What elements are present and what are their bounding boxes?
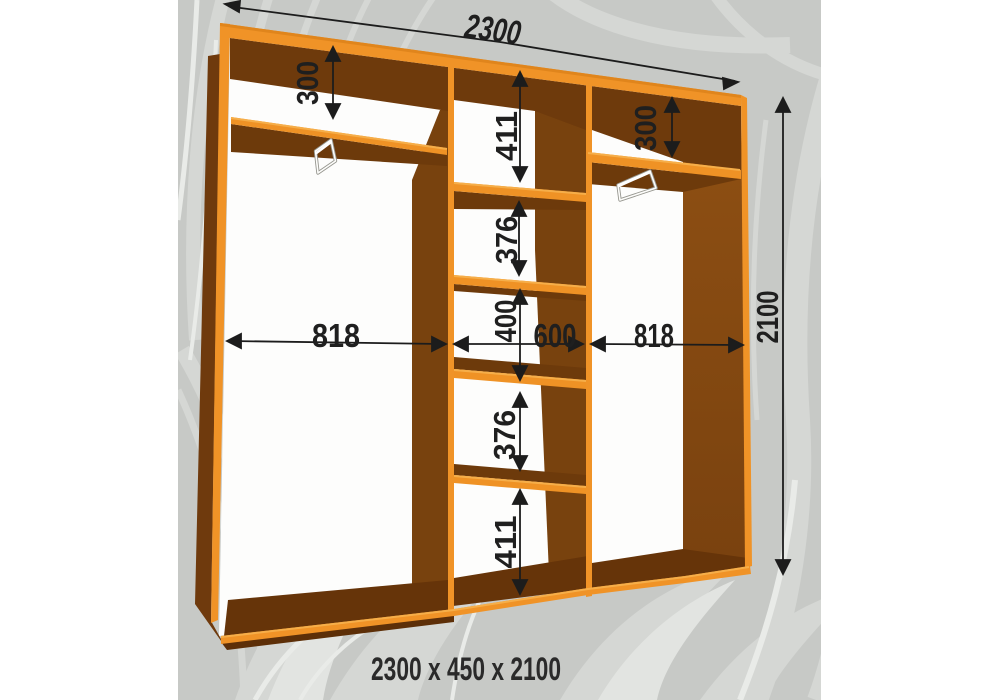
svg-text:300: 300 xyxy=(290,61,325,105)
svg-text:400: 400 xyxy=(488,300,523,343)
svg-text:411: 411 xyxy=(489,111,524,161)
svg-text:376: 376 xyxy=(489,216,524,264)
svg-text:2300 x 450 x 2100: 2300 x 450 x 2100 xyxy=(371,651,561,687)
svg-text:818: 818 xyxy=(312,317,360,354)
svg-text:376: 376 xyxy=(487,410,522,460)
svg-text:600: 600 xyxy=(534,317,577,354)
svg-text:2300: 2300 xyxy=(462,7,524,53)
svg-text:411: 411 xyxy=(488,516,523,569)
svg-text:2100: 2100 xyxy=(750,291,785,344)
svg-text:818: 818 xyxy=(634,317,674,354)
svg-text:300: 300 xyxy=(628,105,663,151)
